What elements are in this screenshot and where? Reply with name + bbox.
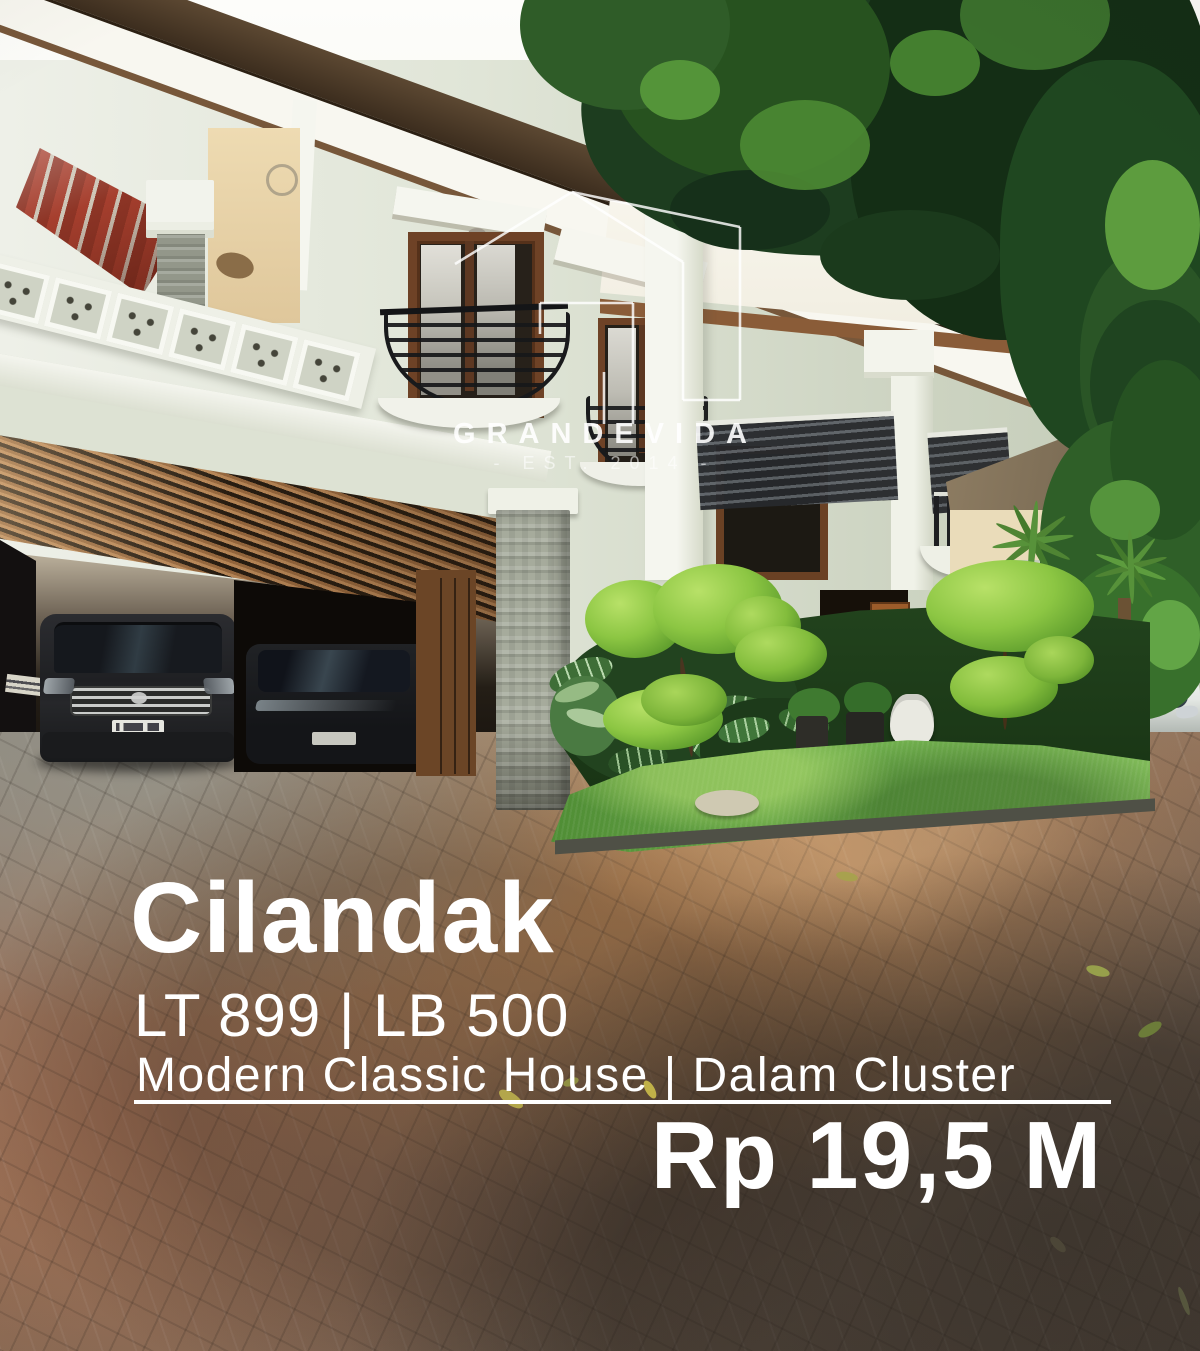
location-title: Cilandak <box>130 868 555 968</box>
watermark-est: - EST. 2014 - <box>0 454 1200 472</box>
price-text: Rp 19,5 M <box>33 1108 1103 1204</box>
watermark-brand: GRANDEVIDA <box>0 420 1200 449</box>
description-line: Modern Classic House | Dalam Cluster <box>136 1052 1016 1100</box>
land-building-info: LT 899 | LB 500 <box>134 986 569 1046</box>
listing-photo-card: GRANDEVIDA - EST. 2014 - Cilandak LT 899… <box>0 0 1200 1351</box>
